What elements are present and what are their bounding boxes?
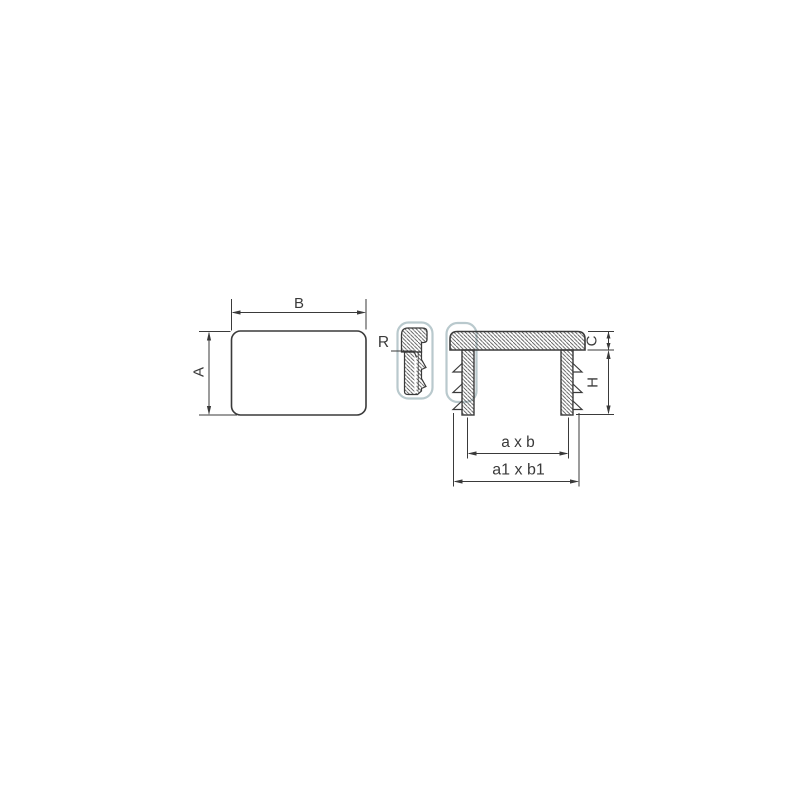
section-right-wall (561, 350, 573, 415)
dimension-C: C (584, 332, 615, 351)
radius-label-R: R (378, 334, 389, 351)
dimension-A: A (191, 332, 238, 416)
dimension-B: B (232, 295, 367, 331)
section-flange (450, 332, 585, 351)
cap-top-outline (232, 331, 367, 415)
dim-label-A: A (191, 367, 208, 377)
dim-label-H: H (585, 377, 602, 388)
section-left-wall (462, 350, 474, 415)
technical-drawing-page: B A R (0, 0, 800, 800)
dimension-H: H (576, 350, 614, 415)
front-view: B A (191, 295, 367, 415)
detail-flange-section (402, 328, 428, 352)
dim-label-axb: a x b (501, 434, 535, 451)
corner-detail-view: R (378, 323, 433, 399)
end-cap-dimension-drawing: B A R (0, 0, 800, 800)
dim-label-C: C (584, 335, 601, 346)
dim-label-B: B (294, 295, 304, 312)
dimension-axb: a x b (468, 418, 569, 459)
dim-label-a1xb1: a1 x b1 (492, 462, 545, 479)
section-view: C H a x b a1 x b1 (447, 323, 615, 487)
right-wall-fins (573, 364, 582, 410)
